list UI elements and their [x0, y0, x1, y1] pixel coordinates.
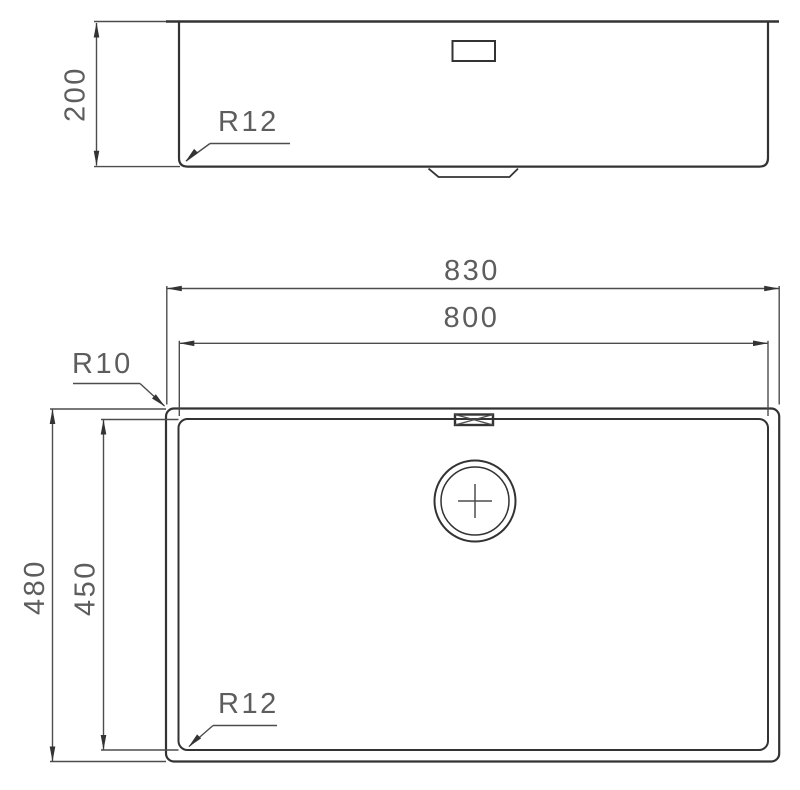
arrow-down-icon: [50, 747, 56, 762]
dim-label-inner-width: 800: [444, 302, 500, 334]
sink-drawing: 200 R12: [0, 0, 800, 790]
arrow-left-icon: [179, 341, 194, 347]
plan-view: 830 800 480: [19, 255, 779, 762]
radius-label-inner: R12: [218, 688, 279, 720]
callout-plan-outer-corner-radius: R10: [72, 348, 165, 407]
radius-label-outer: R10: [72, 348, 133, 380]
callout-plan-inner-corner-radius: R12: [189, 688, 279, 747]
technical-drawing-canvas: 200 R12: [0, 0, 800, 790]
dim-label-outer-width: 830: [444, 255, 500, 287]
arrow-up-icon: [50, 409, 56, 424]
dimension-plan-inner-width: 800: [179, 302, 768, 416]
arrow-down-icon: [101, 735, 107, 750]
callout-side-corner-radius: R12: [186, 106, 291, 162]
side-elevation-view: 200 R12: [60, 22, 780, 178]
drain-icon: [435, 461, 516, 542]
dim-label-outer-height: 480: [19, 559, 51, 615]
arrow-right-icon: [764, 286, 779, 292]
side-bowl-outline: [179, 22, 768, 167]
arrow-right-icon: [753, 341, 768, 347]
arrow-left-icon: [167, 286, 182, 292]
leader-arrow-icon: [186, 149, 199, 162]
arrow-up-icon: [101, 420, 107, 435]
dim-label-inner-height: 450: [70, 560, 102, 616]
leader-arrow-icon: [189, 734, 202, 747]
dim-label-side-height: 200: [60, 66, 92, 122]
overflow-hole-side: [453, 41, 496, 61]
dimension-side-height: 200: [60, 23, 100, 166]
dimension-plan-inner-height: 450: [70, 420, 179, 751]
radius-label-side: R12: [218, 106, 279, 138]
drain-outlet-side: [429, 169, 519, 177]
arrow-down-icon: [94, 151, 100, 166]
arrow-up-icon: [94, 23, 100, 38]
